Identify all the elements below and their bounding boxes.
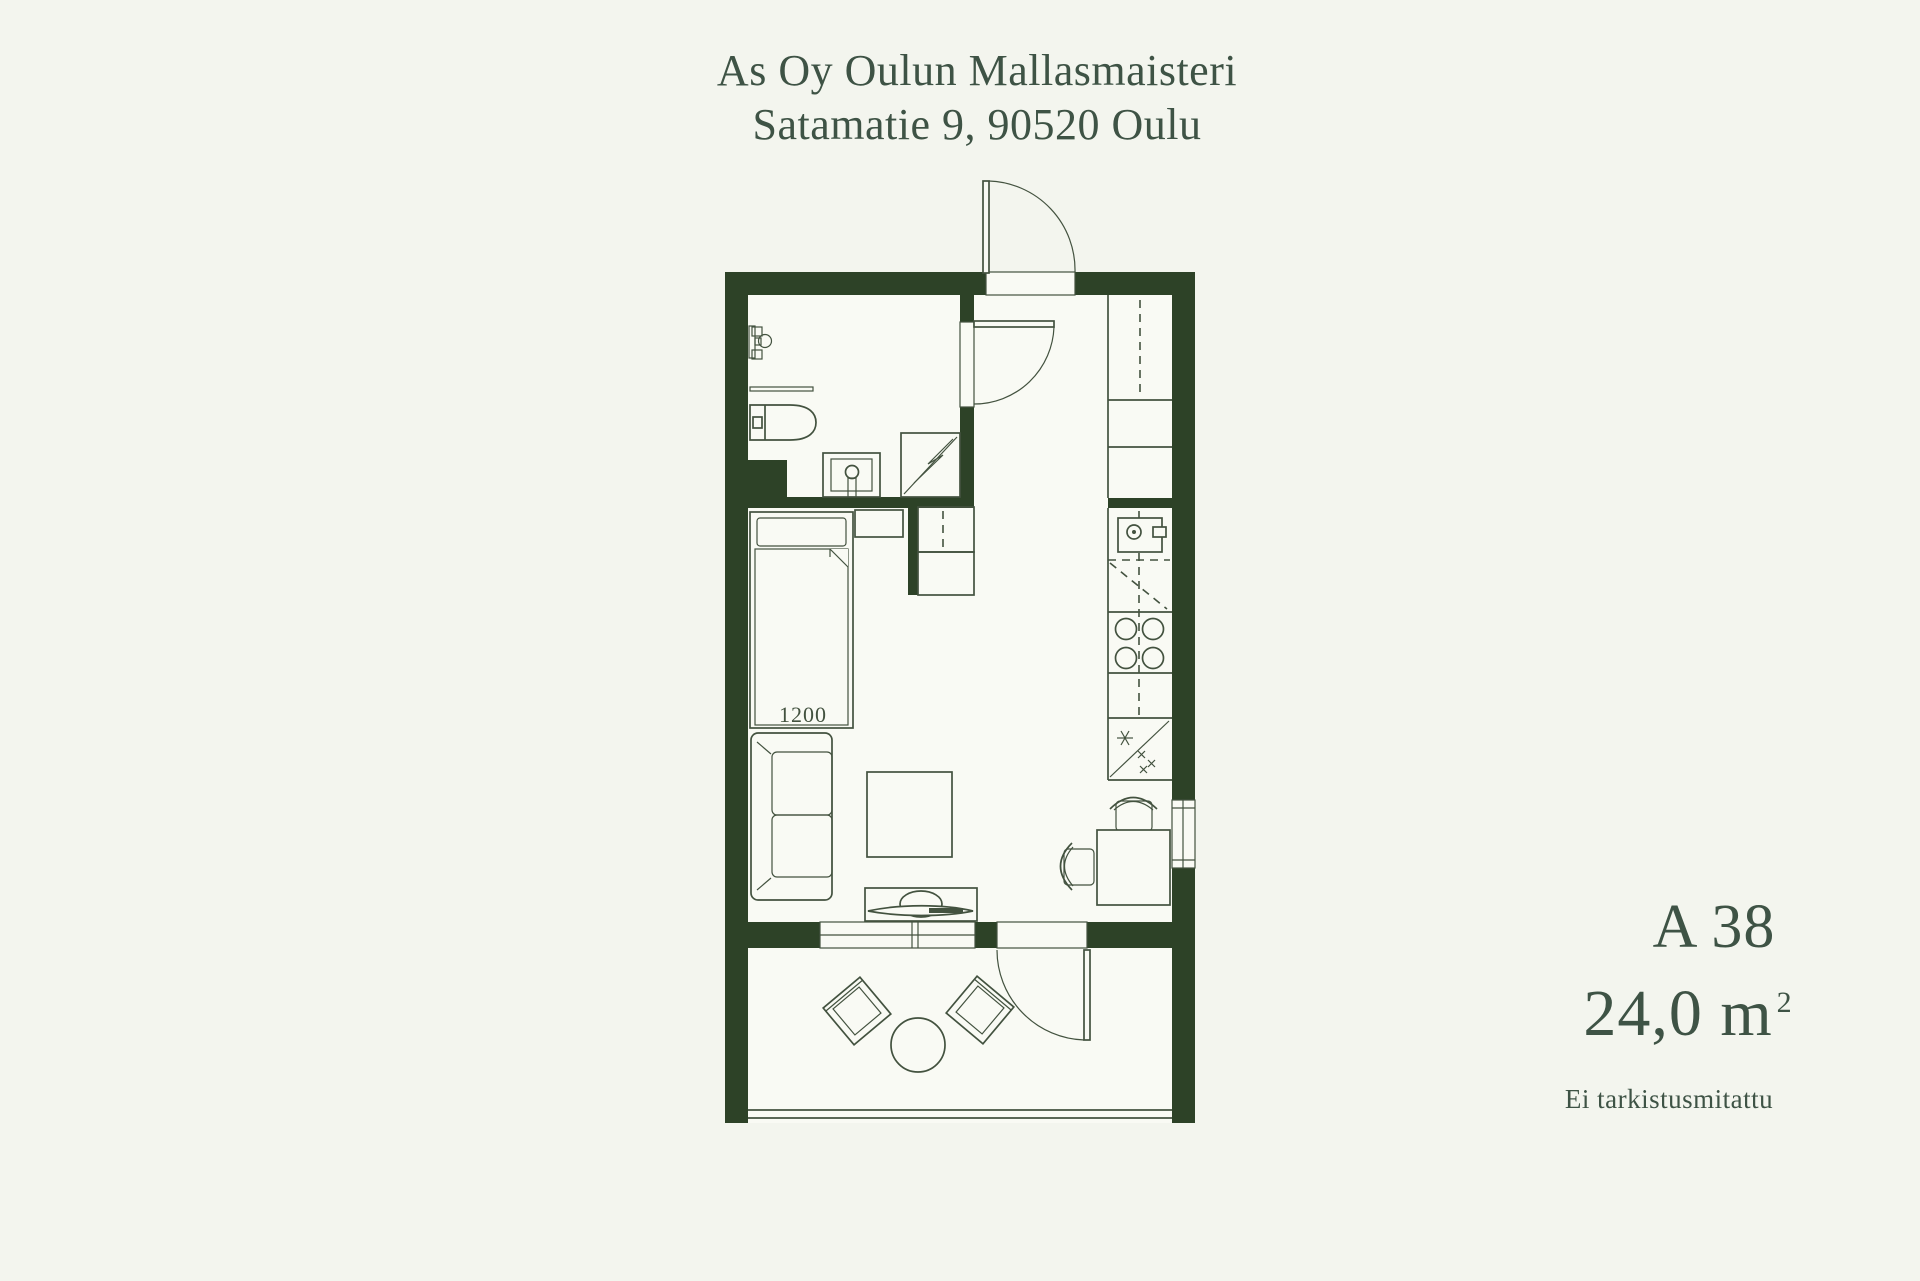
balcony-floor [725, 948, 1195, 1123]
door-leaf [983, 181, 989, 273]
washing-machine [1118, 518, 1166, 552]
door-leaf [974, 321, 1054, 327]
door-swing-arc [989, 181, 1075, 272]
floor-plan-page: As Oy Oulun Mallasmaisteri Satamatie 9, … [0, 0, 1920, 1281]
dining-table [1097, 830, 1170, 905]
floor-plan-drawing: 1200 [0, 0, 1920, 1281]
bed-dimension-label: 1200 [779, 702, 827, 727]
door-leaf [1084, 950, 1090, 1040]
